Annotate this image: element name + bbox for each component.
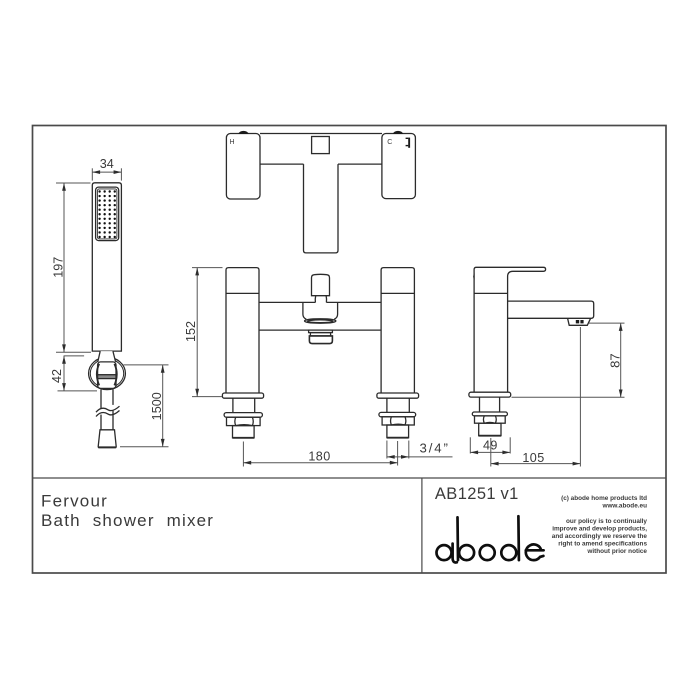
svg-text:87: 87 <box>607 353 622 367</box>
svg-text:www.abode.eu: www.abode.eu <box>601 502 647 509</box>
svg-text:Bath shower mixer: Bath shower mixer <box>41 511 214 530</box>
svg-text:Fervour: Fervour <box>41 491 108 510</box>
svg-text:without prior notice: without prior notice <box>586 548 647 555</box>
svg-text:and accordingly we reserve the: and accordingly we reserve the <box>552 533 648 540</box>
svg-text:(c) abode home products ltd: (c) abode home products ltd <box>561 495 647 502</box>
svg-text:49: 49 <box>483 439 498 453</box>
svg-text:152: 152 <box>184 321 198 342</box>
svg-text:34: 34 <box>100 157 114 171</box>
svg-text:H: H <box>230 139 235 146</box>
svg-text:our policy is to continually: our policy is to continually <box>566 518 647 525</box>
svg-text:AB1251: AB1251 <box>435 485 496 503</box>
svg-text:1500: 1500 <box>150 392 164 420</box>
svg-text:3/4”: 3/4” <box>420 440 450 455</box>
svg-text:42: 42 <box>50 369 64 383</box>
svg-text:v1: v1 <box>501 485 519 503</box>
svg-text:C: C <box>387 139 392 146</box>
svg-text:improve and develop products,: improve and develop products, <box>552 526 647 533</box>
svg-text:105: 105 <box>522 451 544 465</box>
svg-text:right to amend specifications: right to amend specifications <box>558 541 647 548</box>
svg-text:180: 180 <box>308 450 330 464</box>
svg-text:197: 197 <box>51 257 65 278</box>
